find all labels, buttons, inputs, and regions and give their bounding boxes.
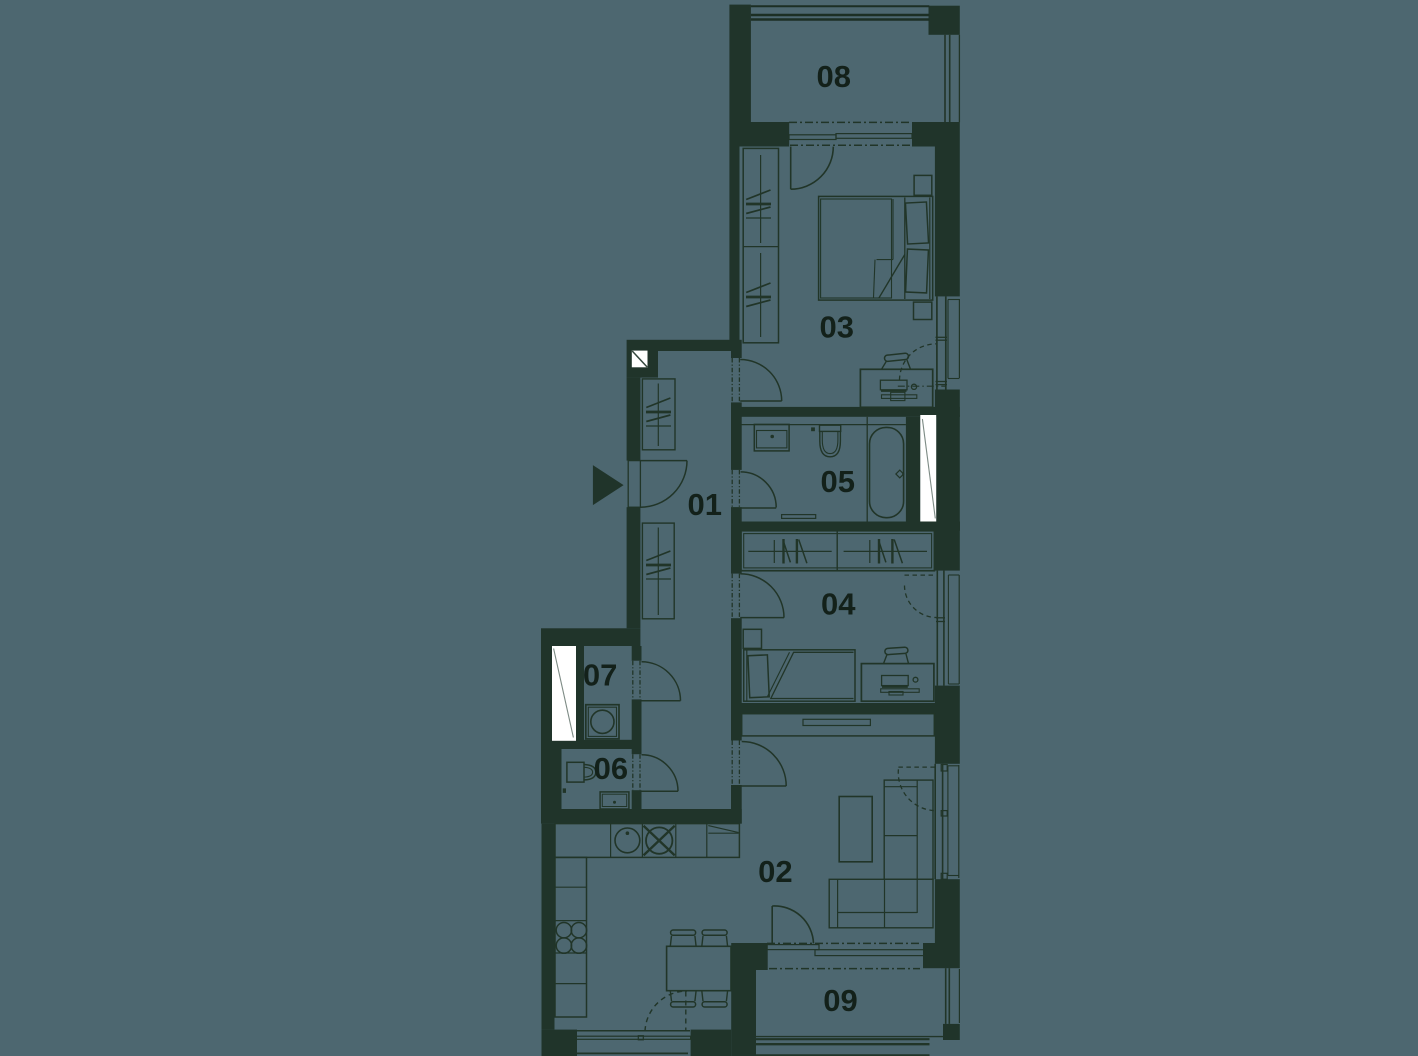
- svg-text:01: 01: [688, 487, 722, 522]
- svg-text:08: 08: [816, 59, 850, 94]
- svg-text:03: 03: [819, 310, 853, 345]
- svg-text:05: 05: [820, 464, 854, 499]
- svg-text:06: 06: [594, 751, 628, 786]
- svg-text:09: 09: [823, 983, 857, 1018]
- svg-text:02: 02: [758, 854, 792, 889]
- svg-text:07: 07: [583, 658, 617, 693]
- svg-text:04: 04: [821, 586, 856, 621]
